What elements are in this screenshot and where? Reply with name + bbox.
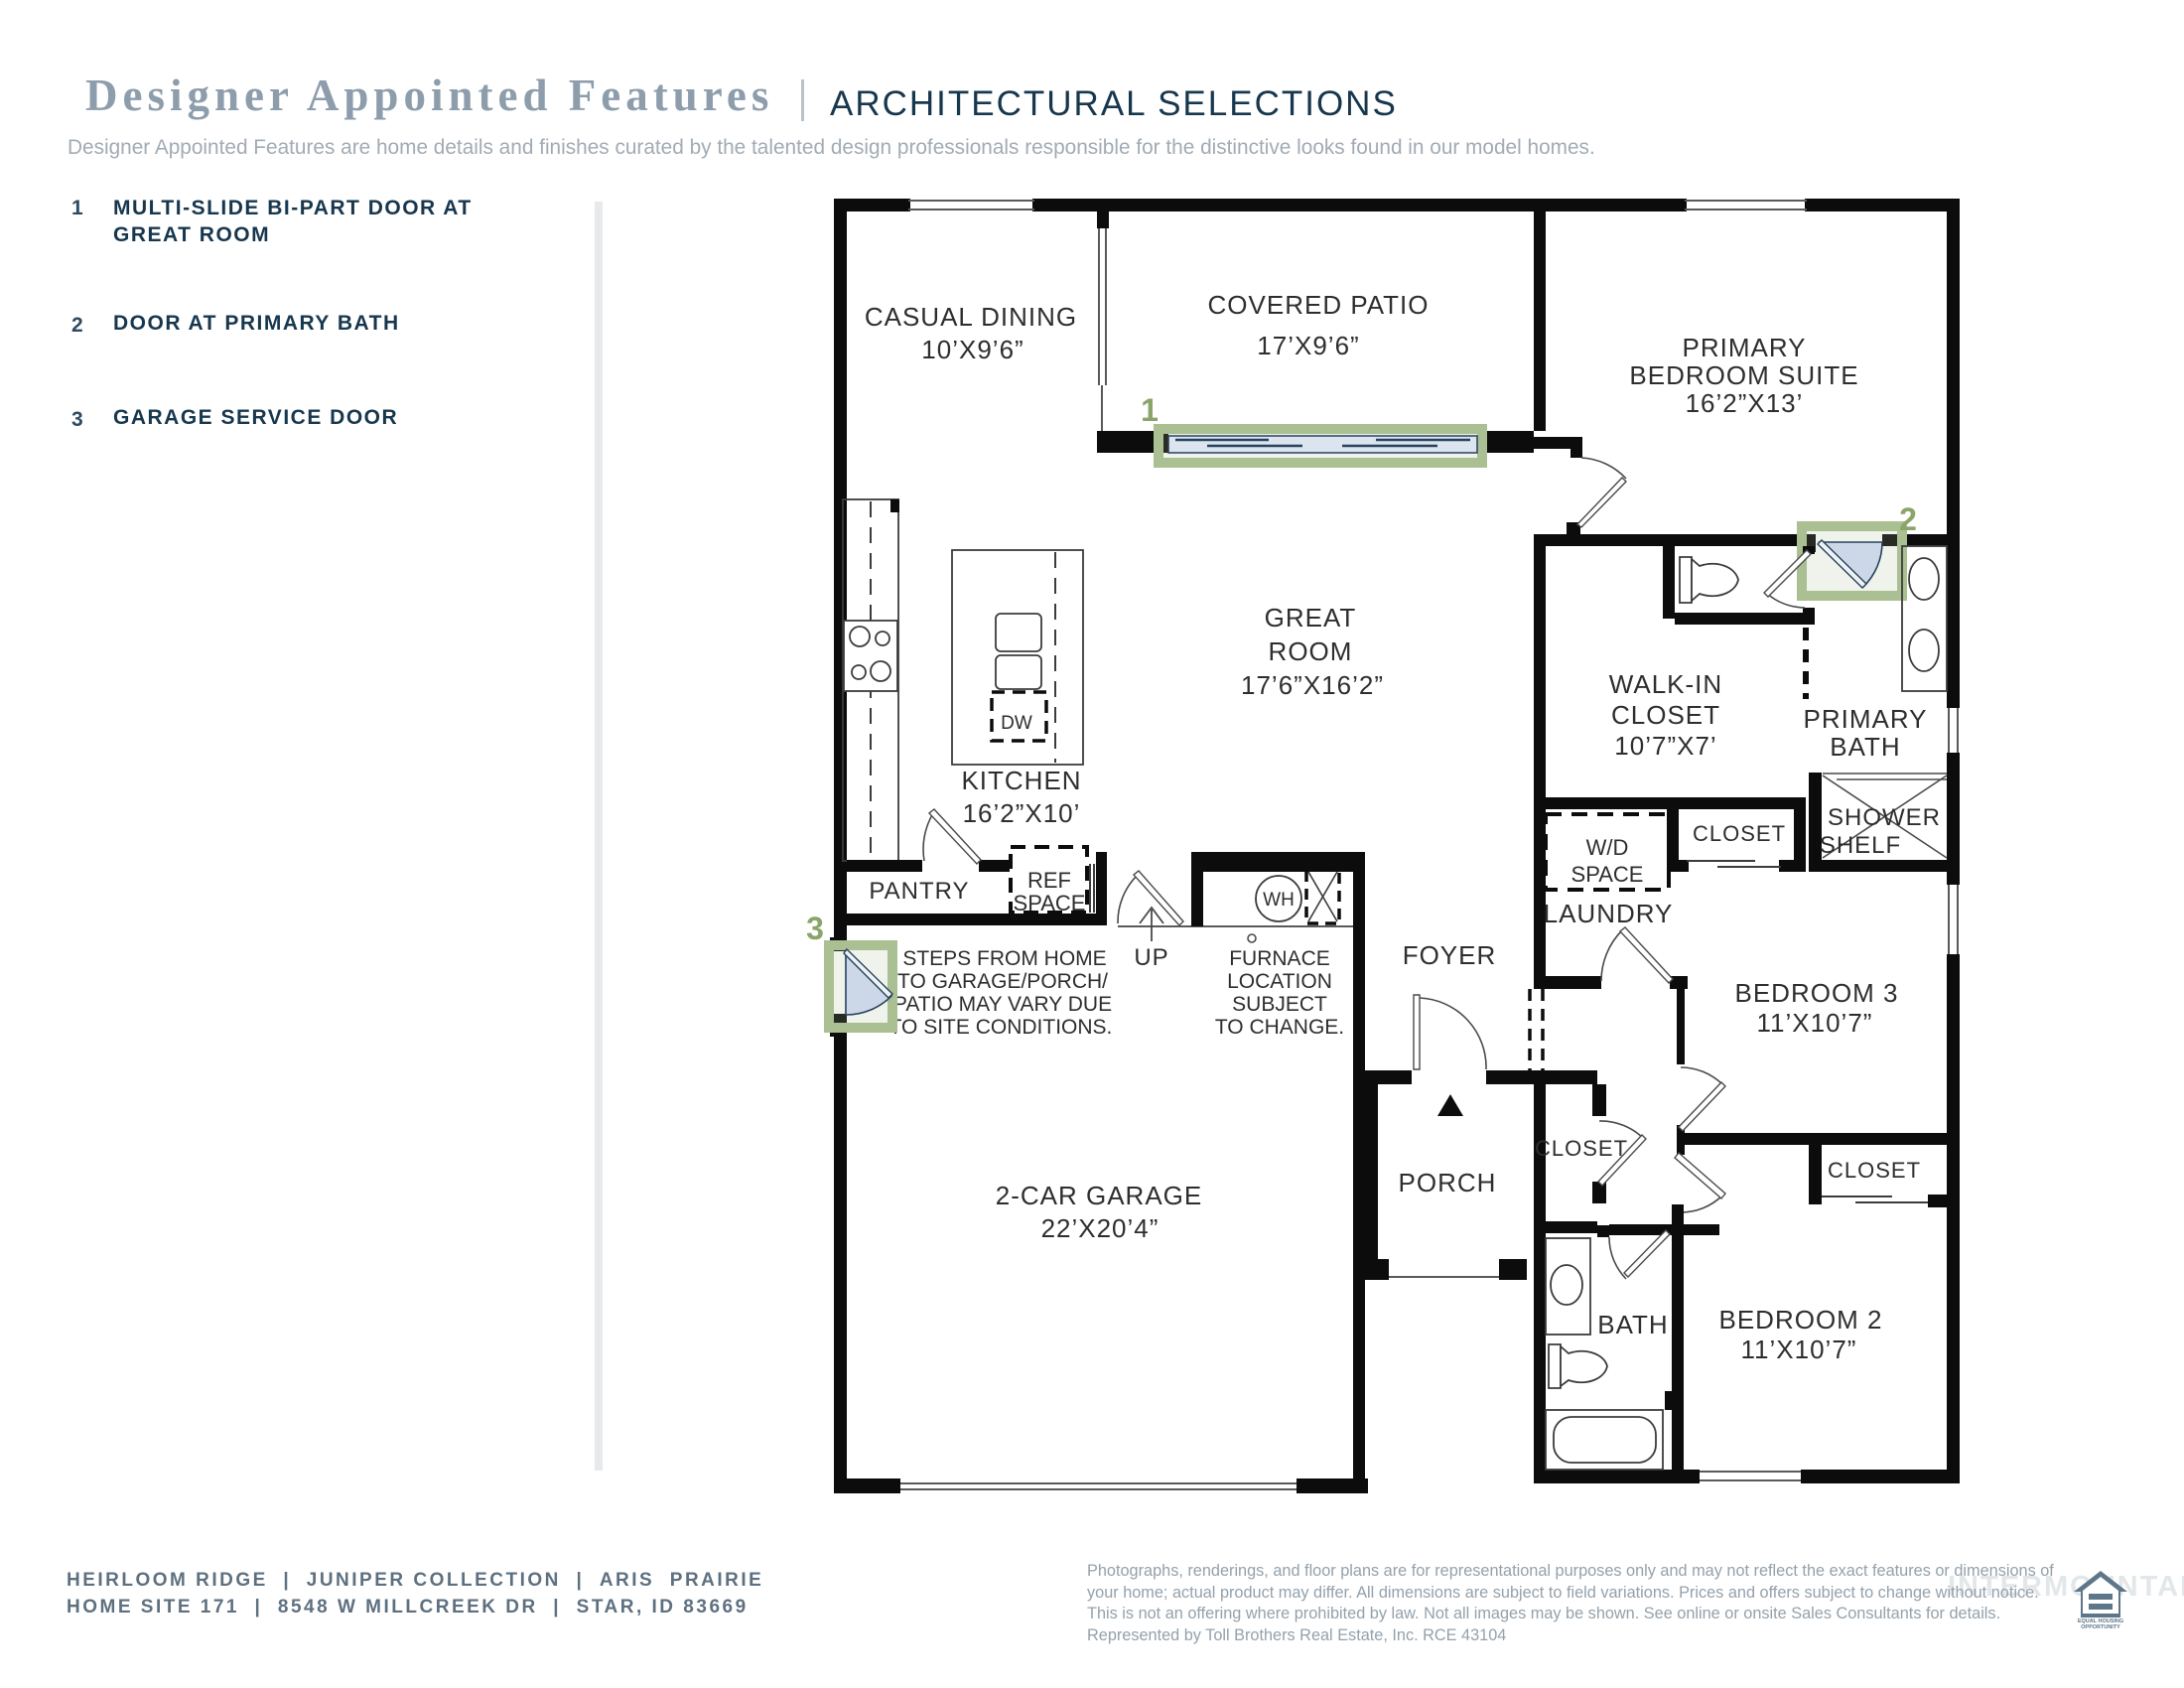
svg-text:1: 1 [1141,392,1159,428]
svg-text:22’X20’4”: 22’X20’4” [1041,1213,1160,1243]
svg-text:FURNACE: FURNACE [1229,947,1330,970]
svg-text:W/D: W/D [1586,835,1629,860]
svg-text:17’6”X16’2”: 17’6”X16’2” [1241,670,1384,700]
svg-text:GREAT: GREAT [1265,603,1357,633]
svg-text:CLOSET: CLOSET [1828,1158,1921,1183]
svg-text:11’X10’7”: 11’X10’7” [1757,1008,1873,1038]
svg-text:LAUNDRY: LAUNDRY [1544,899,1674,928]
svg-text:CLOSET: CLOSET [1693,821,1786,846]
svg-text:ROOM: ROOM [1269,636,1353,666]
svg-text:2-CAR GARAGE: 2-CAR GARAGE [996,1181,1203,1210]
svg-text:11’X10’7”: 11’X10’7” [1741,1335,1857,1364]
svg-text:SHELF: SHELF [1820,832,1901,859]
svg-text:TO CHANGE.: TO CHANGE. [1215,1016,1344,1039]
svg-text:COVERED PATIO: COVERED PATIO [1208,290,1430,320]
svg-text:16’2”X10’: 16’2”X10’ [963,798,1081,828]
svg-text:SHOWER: SHOWER [1828,804,1941,831]
svg-text:BEDROOM 2: BEDROOM 2 [1718,1305,1882,1335]
svg-text:PRIMARY: PRIMARY [1683,333,1807,362]
svg-text:TO GARAGE/PORCH/: TO GARAGE/PORCH/ [897,970,1108,993]
svg-text:PORCH: PORCH [1399,1168,1497,1197]
svg-text:SUBJECT: SUBJECT [1232,993,1327,1016]
svg-text:BATH: BATH [1597,1310,1668,1339]
svg-text:CASUAL DINING: CASUAL DINING [865,302,1077,332]
svg-text:CLOSET: CLOSET [1535,1136,1628,1161]
svg-text:REF: REF [1027,868,1071,893]
svg-text:PATIO MAY VARY DUE: PATIO MAY VARY DUE [893,993,1112,1016]
svg-text:BEDROOM SUITE: BEDROOM SUITE [1629,360,1858,390]
svg-text:FOYER: FOYER [1403,940,1497,970]
svg-text:10’7”X7’: 10’7”X7’ [1614,731,1716,761]
svg-text:UP: UP [1134,944,1168,971]
svg-text:SPACE: SPACE [1571,862,1644,887]
svg-text:17’X9’6”: 17’X9’6” [1257,331,1359,360]
svg-text:OPPORTUNITY: OPPORTUNITY [2081,1624,2120,1629]
svg-text:2: 2 [1899,501,1917,537]
svg-text:WH: WH [1263,890,1295,911]
svg-text:DW: DW [1001,713,1032,734]
svg-text:BATH: BATH [1830,732,1900,762]
svg-text:10’X9’6”: 10’X9’6” [921,335,1024,364]
svg-text:CLOSET: CLOSET [1611,700,1720,730]
svg-text:PRIMARY: PRIMARY [1804,704,1928,734]
svg-text:LOCATION: LOCATION [1227,970,1332,993]
svg-text:KITCHEN: KITCHEN [961,766,1081,795]
svg-text:BEDROOM 3: BEDROOM 3 [1734,978,1898,1008]
svg-text:3: 3 [806,911,824,946]
svg-text:16’2”X13’: 16’2”X13’ [1686,388,1804,418]
svg-text:STEPS FROM HOME: STEPS FROM HOME [902,947,1106,970]
svg-text:TO SITE CONDITIONS.: TO SITE CONDITIONS. [889,1016,1113,1039]
svg-text:WALK-IN: WALK-IN [1609,669,1722,699]
svg-text:PANTRY: PANTRY [869,878,969,905]
svg-text:SPACE: SPACE [1014,891,1086,915]
